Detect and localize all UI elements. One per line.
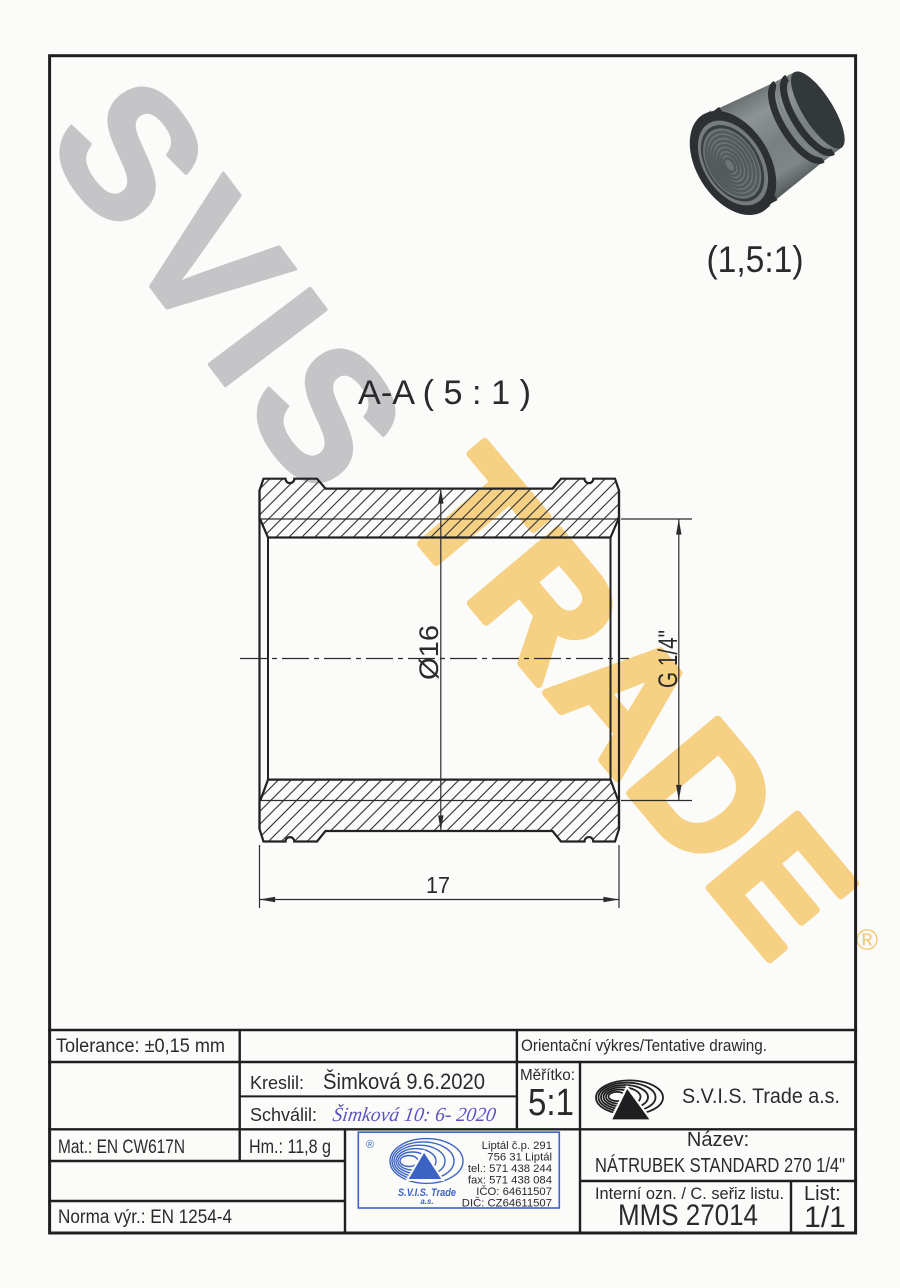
svg-text:Šimková 9.6.2020: Šimková 9.6.2020: [323, 1069, 485, 1094]
svg-text:17: 17: [426, 872, 450, 898]
svg-text:Hm.: 11,8 g: Hm.: 11,8 g: [249, 1137, 331, 1158]
svg-text:DIČ: CZ64611507: DIČ: CZ64611507: [462, 1197, 552, 1210]
svg-text:®: ®: [856, 924, 878, 957]
svg-text:Kreslil:: Kreslil:: [250, 1073, 304, 1093]
svg-text:Tolerance: ±0,15 mm: Tolerance: ±0,15 mm: [56, 1036, 225, 1057]
svg-text:Liptál č.p. 291: Liptál č.p. 291: [482, 1140, 552, 1152]
svg-text:Orientační výkres/Tentative dr: Orientační výkres/Tentative drawing.: [521, 1037, 767, 1055]
svg-text:tel.: 571 438 244: tel.: 571 438 244: [468, 1163, 552, 1175]
svg-text:IČO: 64611507: IČO: 64611507: [476, 1185, 552, 1198]
svg-text:5:1: 5:1: [528, 1082, 574, 1124]
svg-text:1/1: 1/1: [804, 1201, 846, 1234]
svg-text:a.s.: a.s.: [420, 1197, 433, 1206]
svg-text:Mat.: EN CW617N: Mat.: EN CW617N: [58, 1137, 185, 1158]
svg-text:Ø16: Ø16: [414, 625, 444, 680]
svg-text:Šimková 10: 6- 2020: Šimková 10: 6- 2020: [331, 1102, 497, 1126]
svg-text:756 31 Liptál: 756 31 Liptál: [487, 1152, 552, 1164]
svg-text:(1,5:1): (1,5:1): [707, 238, 804, 280]
svg-text:G 1/4": G 1/4": [653, 630, 683, 688]
svg-text:fax: 571 438 084: fax: 571 438 084: [468, 1175, 552, 1187]
svg-text:Schválil:: Schválil:: [250, 1105, 317, 1125]
svg-text:NÁTRUBEK STANDARD 270 1/4": NÁTRUBEK STANDARD 270 1/4": [595, 1154, 845, 1177]
svg-text:Norma výr.: EN 1254-4: Norma výr.: EN 1254-4: [58, 1207, 232, 1228]
svg-text:Název:: Název:: [687, 1129, 749, 1151]
svg-text:®: ®: [366, 1139, 374, 1151]
svg-text:S.V.I.S. Trade a.s.: S.V.I.S. Trade a.s.: [682, 1085, 840, 1108]
svg-text:A-A ( 5 : 1 ): A-A ( 5 : 1 ): [358, 374, 531, 412]
svg-text:MMS 27014: MMS 27014: [618, 1199, 758, 1232]
